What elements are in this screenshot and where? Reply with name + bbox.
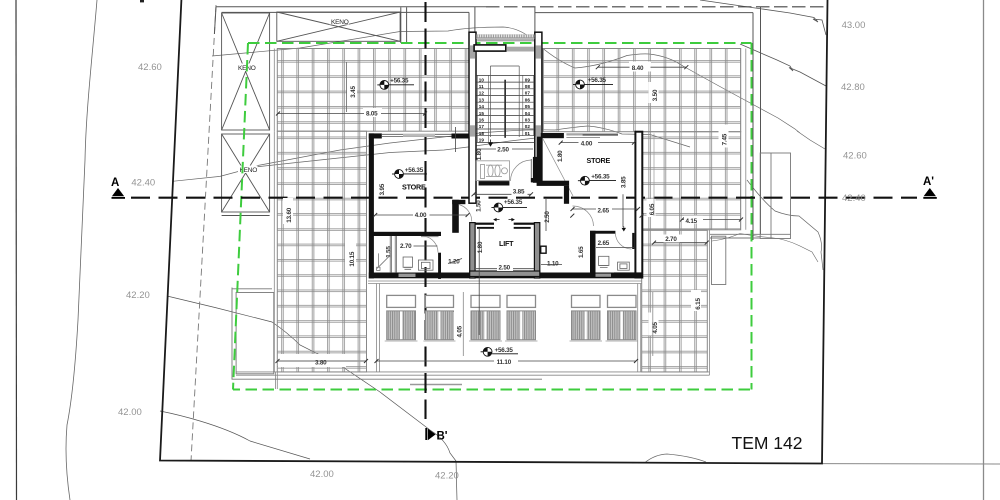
svg-text:3.50: 3.50 — [652, 89, 659, 101]
svg-text:2.70: 2.70 — [400, 243, 412, 250]
svg-text:09: 09 — [525, 77, 531, 82]
svg-text:6.15: 6.15 — [695, 298, 702, 310]
svg-text:04: 04 — [525, 111, 531, 116]
svg-text:01: 01 — [525, 131, 531, 136]
svg-text:1.65: 1.65 — [578, 246, 585, 258]
svg-text:2.50: 2.50 — [499, 264, 511, 271]
svg-text:+56.35: +56.35 — [405, 167, 424, 174]
svg-text:+56.35: +56.35 — [588, 77, 607, 84]
svg-text:+56.35: +56.35 — [495, 347, 514, 354]
svg-text:+56.35: +56.35 — [504, 199, 523, 206]
svg-text:1.80: 1.80 — [557, 150, 564, 162]
svg-text:4.05: 4.05 — [652, 321, 659, 333]
svg-text:05: 05 — [525, 104, 531, 109]
svg-text:STORE: STORE — [402, 183, 426, 192]
svg-text:KENO: KENO — [331, 19, 349, 26]
svg-text:42.20: 42.20 — [126, 290, 150, 301]
svg-text:19: 19 — [479, 138, 485, 143]
svg-text:42.20: 42.20 — [435, 471, 459, 482]
svg-text:16: 16 — [479, 118, 485, 123]
svg-text:1.80: 1.80 — [476, 148, 483, 160]
svg-text:42.40: 42.40 — [131, 177, 155, 188]
svg-text:4.00: 4.00 — [415, 212, 427, 219]
svg-text:1.10: 1.10 — [547, 260, 559, 267]
svg-text:3.80: 3.80 — [315, 360, 327, 367]
svg-text:08: 08 — [525, 84, 531, 89]
svg-text:11.10: 11.10 — [497, 359, 512, 366]
svg-text:8.40: 8.40 — [632, 65, 644, 72]
svg-text:2.65: 2.65 — [598, 208, 610, 215]
svg-text:2.50: 2.50 — [544, 211, 551, 223]
svg-text:A: A — [111, 177, 119, 189]
svg-text:2.70: 2.70 — [665, 236, 677, 243]
svg-text:42.00: 42.00 — [310, 469, 334, 480]
svg-text:42.40: 42.40 — [842, 193, 866, 204]
svg-text:TEM 142: TEM 142 — [732, 433, 803, 453]
svg-text:LIFT: LIFT — [499, 239, 514, 248]
svg-text:3.45: 3.45 — [350, 86, 357, 98]
svg-text:2.65: 2.65 — [598, 240, 610, 247]
svg-text:42.60: 42.60 — [843, 151, 867, 162]
svg-text:07: 07 — [525, 91, 531, 96]
svg-text:42.60: 42.60 — [138, 62, 162, 73]
svg-text:12: 12 — [479, 91, 485, 96]
svg-text:10: 10 — [479, 77, 485, 82]
svg-text:3.85: 3.85 — [513, 189, 525, 196]
svg-text:1.50: 1.50 — [475, 200, 482, 212]
svg-text:4.00: 4.00 — [581, 140, 593, 147]
svg-text:4.15: 4.15 — [686, 218, 698, 225]
svg-text:+56.35: +56.35 — [591, 174, 610, 181]
svg-text:14: 14 — [479, 104, 485, 109]
svg-text:1.80: 1.80 — [477, 241, 484, 253]
svg-text:3.85: 3.85 — [620, 176, 627, 188]
svg-text:6.05: 6.05 — [649, 203, 656, 215]
svg-text:18: 18 — [479, 131, 485, 136]
svg-text:03: 03 — [525, 118, 531, 123]
svg-text:10.15: 10.15 — [349, 251, 356, 266]
svg-text:3.95: 3.95 — [379, 183, 386, 195]
svg-text:42.80: 42.80 — [841, 82, 865, 93]
svg-text:02: 02 — [525, 124, 531, 129]
svg-text:B': B' — [437, 431, 448, 443]
svg-text:42.00: 42.00 — [118, 407, 142, 418]
svg-text:STORE: STORE — [587, 156, 611, 165]
svg-text:43.00: 43.00 — [842, 20, 866, 31]
svg-text:17: 17 — [479, 124, 485, 129]
svg-text:13: 13 — [479, 97, 485, 102]
svg-text:11: 11 — [479, 84, 484, 89]
svg-text:+56.35: +56.35 — [390, 78, 409, 85]
svg-text:2.50: 2.50 — [497, 146, 509, 153]
svg-text:15: 15 — [479, 111, 485, 116]
svg-text:A': A' — [923, 176, 934, 188]
svg-text:4.05: 4.05 — [457, 325, 464, 337]
svg-text:06: 06 — [525, 97, 531, 102]
svg-text:1.20: 1.20 — [448, 258, 460, 265]
svg-text:8.05: 8.05 — [366, 111, 378, 118]
svg-text:1.55: 1.55 — [385, 246, 392, 258]
svg-text:13.60: 13.60 — [286, 207, 293, 222]
svg-text:7.45: 7.45 — [722, 133, 729, 145]
